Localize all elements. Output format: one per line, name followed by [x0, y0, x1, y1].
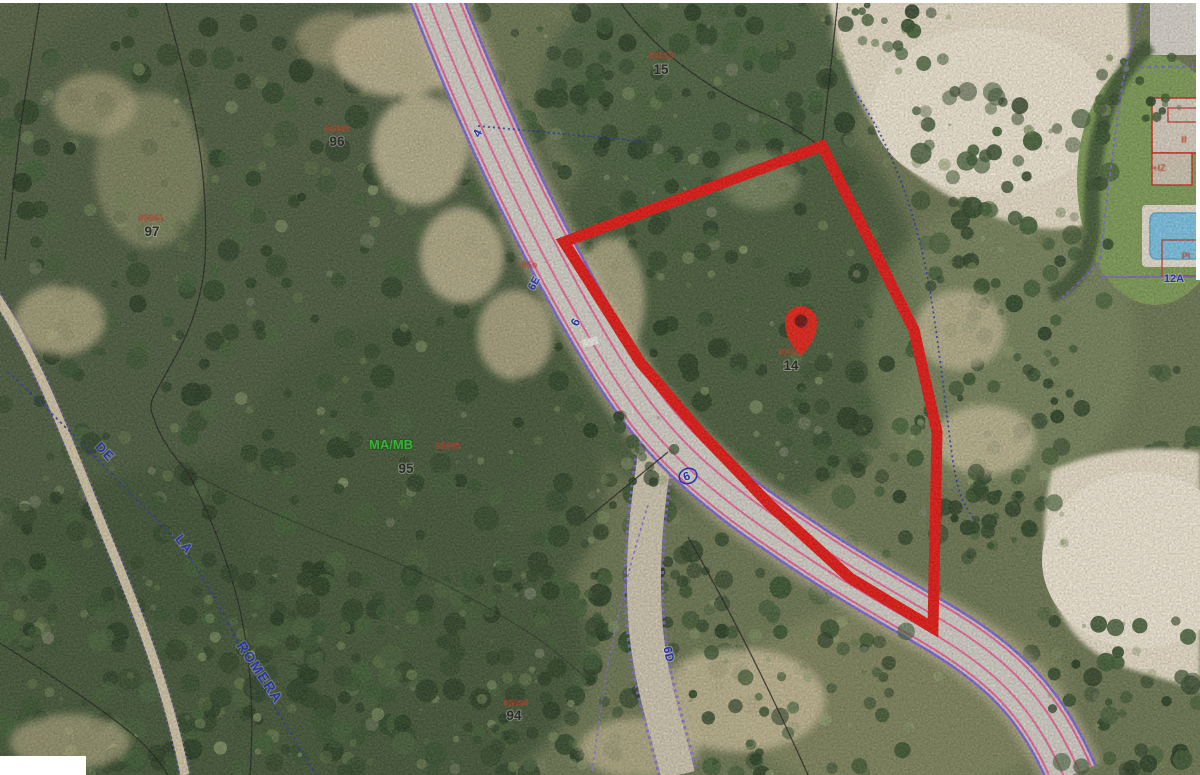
map-viewport[interactable]: 9697151495946504065041630156301465094650…: [0, 0, 1200, 775]
grain-light: [0, 0, 1200, 775]
aerial-map: 9697151495946504065041630156301465094650…: [0, 0, 1200, 775]
